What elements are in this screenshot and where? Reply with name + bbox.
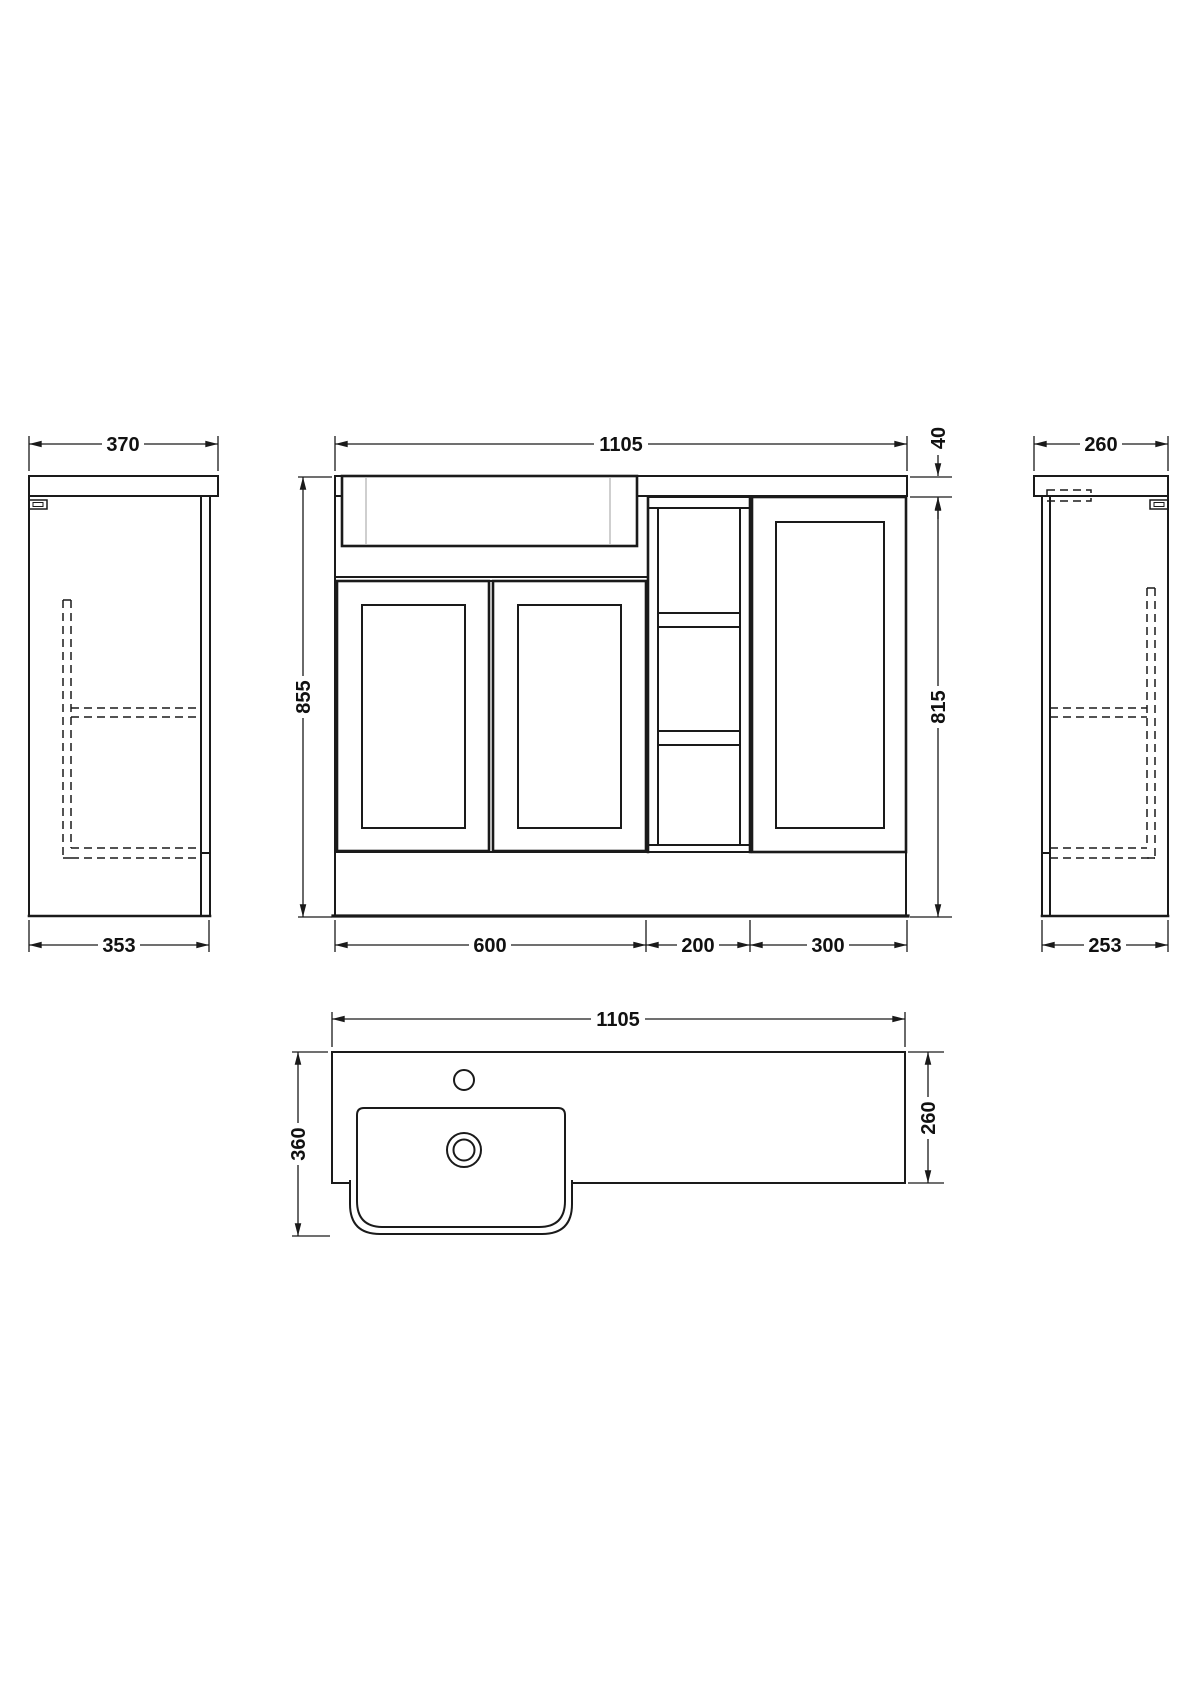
left-view-hidden-lines [63, 600, 201, 858]
dim-label-353: 353 [102, 935, 135, 957]
vanity-door-right [493, 581, 646, 851]
dim-label-200: 200 [681, 935, 714, 957]
dim-label-600: 600 [473, 935, 506, 957]
dim-front-width: 1105 [335, 433, 907, 471]
vanity-unit-technical-drawing: 370 353 [0, 0, 1190, 1684]
right-view-hidden-lines [1047, 490, 1155, 858]
dim-plan-depth-worktop: 260 [908, 1052, 944, 1183]
dim-front-sections: 600 200 300 [335, 920, 907, 957]
wc-door-panel [776, 522, 884, 828]
tap-hole [454, 1070, 474, 1090]
plan-view: 1105 360 260 [287, 1008, 944, 1236]
right-view-worktop [1034, 476, 1168, 496]
dim-plan-depth-total: 360 [287, 1052, 330, 1236]
dim-left-width-top: 370 [29, 433, 218, 471]
vanity-door-right-panel [518, 605, 621, 828]
dim-label-253: 253 [1088, 935, 1121, 957]
dim-label-260: 260 [1084, 434, 1117, 456]
left-view-door-edge [201, 496, 210, 916]
front-basin-recess [342, 476, 637, 546]
dim-label-370: 370 [106, 434, 139, 456]
dim-plan-width: 1105 [332, 1008, 905, 1047]
dim-front-height-total: 855 [292, 477, 332, 917]
dim-worktop-thickness: 40 [910, 423, 952, 519]
right-view-door-edge [1042, 496, 1050, 916]
hinge-icon [1150, 500, 1168, 509]
dim-left-width-bottom: 353 [29, 920, 209, 957]
front-view: 1105 855 40 815 [292, 423, 952, 957]
dim-label-1105: 1105 [599, 434, 642, 456]
dim-front-cabinet-height: 815 [910, 497, 952, 917]
dim-label-300: 300 [811, 935, 844, 957]
left-side-view: 370 353 [29, 433, 218, 957]
dim-right-depth-bottom: 253 [1042, 920, 1168, 957]
dim-label-plan-260: 260 [918, 1101, 940, 1134]
open-shelf-unit [648, 497, 750, 852]
left-view-worktop [29, 476, 218, 496]
dim-label-360: 360 [288, 1127, 310, 1160]
vanity-door-left-panel [362, 605, 465, 828]
dim-label-815: 815 [928, 690, 950, 723]
hinge-icon [29, 500, 47, 509]
dim-right-depth-top: 260 [1034, 433, 1168, 471]
vanity-door-left [337, 581, 489, 851]
right-side-view: 260 253 [1034, 433, 1168, 957]
dim-label-plan-1105: 1105 [596, 1009, 639, 1031]
dim-label-855: 855 [293, 680, 315, 713]
technical-drawing-canvas: 370 353 [0, 0, 1190, 1684]
dim-label-40: 40 [928, 427, 950, 449]
